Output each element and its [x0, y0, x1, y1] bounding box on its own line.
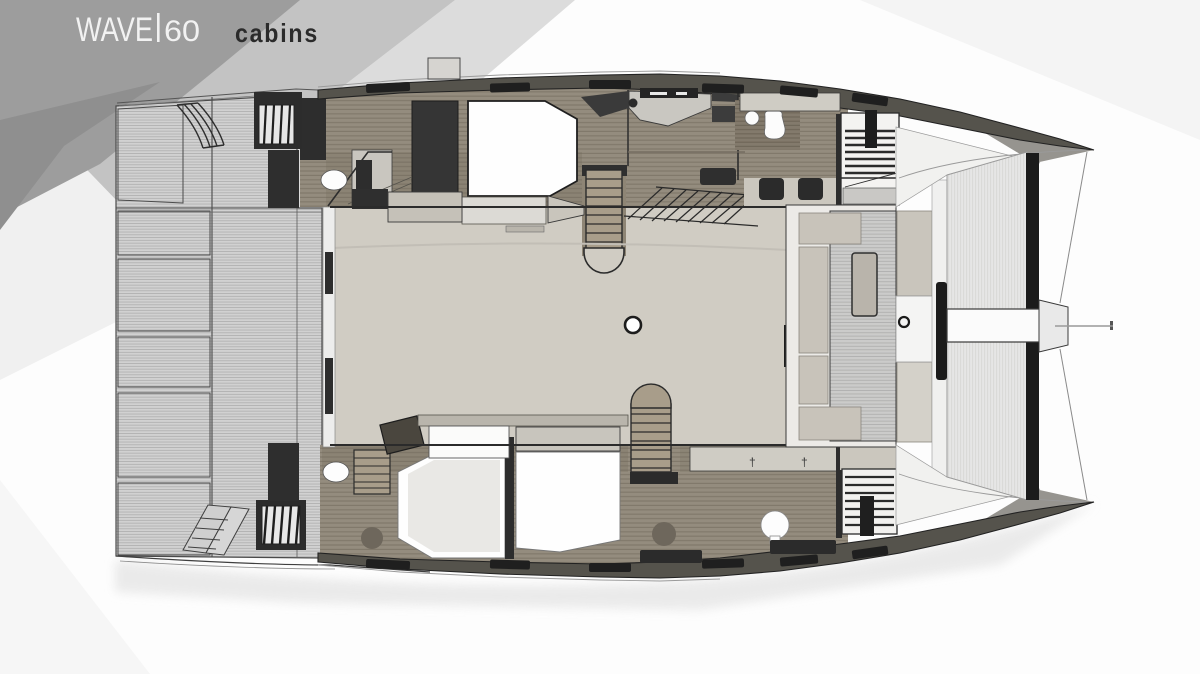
- svg-text:60: 60: [164, 15, 200, 48]
- svg-text:†: †: [749, 455, 756, 469]
- svg-text:WAVE: WAVE: [76, 11, 153, 49]
- svg-text:†: †: [801, 455, 808, 469]
- svg-text:cabins: cabins: [235, 18, 319, 48]
